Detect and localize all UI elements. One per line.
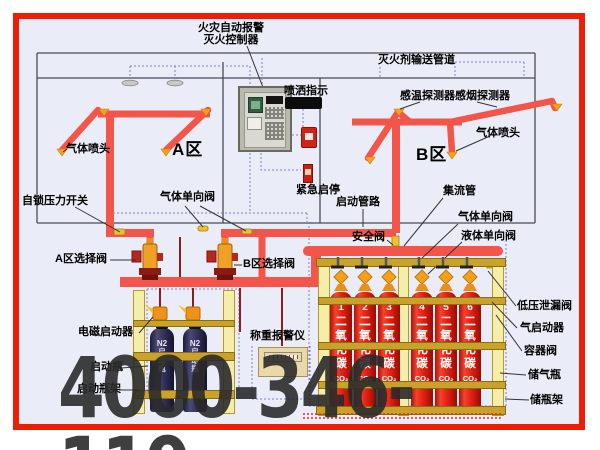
label-zone-b: B区: [416, 149, 447, 161]
label-selector-a: A区选择阀: [55, 253, 107, 265]
watermark-phone-number: 4000-346-119: [58, 348, 492, 450]
label-low-pressure-leak-valve: 低压泄漏阀: [517, 300, 572, 312]
label-emergency-stop: 紧急启停: [296, 184, 340, 196]
label-heat-detector: 感温探测器: [400, 90, 455, 102]
label-nozzle-a: 气体喷头: [66, 143, 110, 155]
label-start-pipeline: 启动管路: [336, 196, 380, 208]
controller-label-line2: 灭火控制器: [204, 34, 259, 46]
label-gas-check-left: 气体单向阀: [160, 191, 215, 203]
label-container-valve: 容器阀: [524, 345, 557, 357]
label-nozzle-b: 气体喷头: [476, 127, 520, 139]
label-manifold: 集流管: [443, 185, 476, 197]
label-storage-rack: 储瓶架: [530, 394, 563, 406]
label-delivery-pipe: 灭火剂输送管道: [378, 54, 455, 66]
label-storage-cylinder: 储气瓶: [528, 369, 561, 381]
label-spray-indicator: 喷洒指示: [284, 85, 328, 97]
label-gas-starter: 气启动器: [520, 322, 564, 334]
label-selector-b: B区选择阀: [243, 258, 295, 270]
label-safety-valve: 安全阀: [352, 231, 385, 243]
diagram-canvas: N2 启动瓶 N2 启动瓶 1 二氧化碳 CO₂ 2 二氧化碳 CO₂ 3 二氧…: [0, 0, 600, 450]
cylinder-valve-stations: [331, 257, 477, 291]
controller-label: 火灾自动报警 灭火控制器: [196, 22, 266, 46]
label-pressure-switch: 自锁压力开关: [22, 195, 88, 207]
label-solenoid-starter: 电磁启动器: [78, 326, 133, 338]
label-liquid-check: 液体单向阀: [461, 230, 516, 242]
label-zone-a: A区: [172, 144, 203, 156]
controller-label-line1: 火灾自动报警: [198, 22, 264, 34]
label-smoke-detector: 感烟探测器: [455, 90, 510, 102]
label-gas-check-right: 气体单向阀: [458, 211, 513, 223]
